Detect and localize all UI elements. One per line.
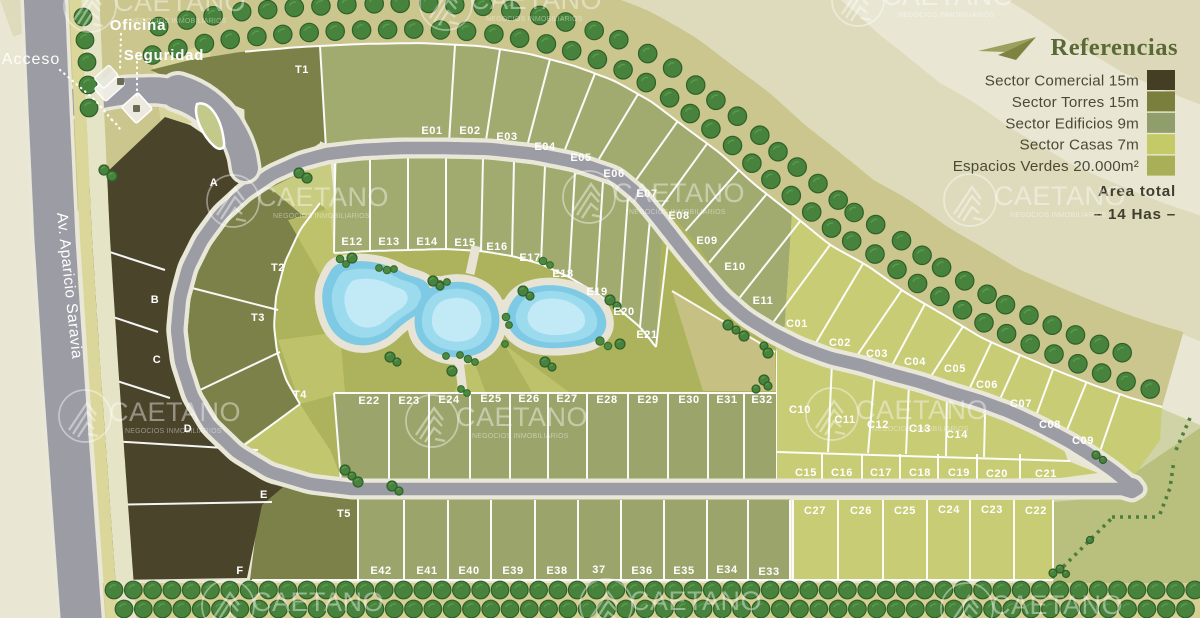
svg-text:C18: C18 [909,467,931,479]
svg-text:C02: C02 [829,337,851,349]
svg-text:C20: C20 [986,468,1008,480]
svg-text:C05: C05 [944,363,966,375]
svg-text:E16: E16 [486,241,507,253]
svg-text:Referencias: Referencias [1051,34,1179,61]
svg-text:NEGOCIOS INMOBILIARIOS: NEGOCIOS INMOBILIARIOS [273,213,370,220]
svg-text:C27: C27 [804,505,826,517]
svg-text:E03: E03 [496,131,517,143]
svg-text:T1: T1 [295,64,309,76]
svg-text:CAETANO: CAETANO [252,587,384,617]
svg-text:E12: E12 [341,236,362,248]
svg-text:E39: E39 [502,565,523,577]
svg-text:E10: E10 [724,261,745,273]
svg-text:CAETANO: CAETANO [994,181,1126,211]
svg-text:Sector Comercial 15m: Sector Comercial 15m [985,73,1139,90]
svg-text:C15: C15 [795,467,817,479]
svg-text:T2: T2 [271,262,285,274]
svg-text:C07: C07 [1010,398,1032,410]
svg-text:NEGOCIOS INMOBILIARIOS: NEGOCIOS INMOBILIARIOS [125,428,222,435]
svg-text:E20: E20 [613,306,634,318]
svg-text:CAETANO: CAETANO [456,402,588,432]
svg-text:NEGOCIOS INMOBILIARIOS: NEGOCIOS INMOBILIARIOS [486,16,583,23]
svg-text:CAETANO: CAETANO [109,397,241,427]
svg-text:E18: E18 [552,268,573,280]
svg-text:CAETANO: CAETANO [470,0,602,15]
svg-text:NEGOCIOS INMOBILIARIOS: NEGOCIOS INMOBILIARIOS [872,426,969,433]
svg-text:C23: C23 [981,504,1003,516]
svg-text:E42: E42 [370,565,391,577]
svg-text:E05: E05 [570,152,591,164]
svg-text:C03: C03 [866,348,888,360]
svg-text:E29: E29 [637,394,658,406]
svg-text:E30: E30 [678,394,699,406]
svg-text:T4: T4 [293,389,307,401]
svg-text:Sector Casas 7m: Sector Casas 7m [1020,137,1139,154]
svg-text:E14: E14 [416,236,438,248]
svg-text:E19: E19 [586,286,607,298]
svg-text:C06: C06 [976,379,998,391]
svg-text:C01: C01 [786,318,808,330]
svg-text:T3: T3 [251,312,265,324]
svg-text:E09: E09 [696,235,717,247]
svg-text:E21: E21 [636,329,657,341]
svg-text:NEGOCIOS INMOBILIARIOS: NEGOCIOS INMOBILIARIOS [1010,212,1107,219]
svg-text:Sector Edificios 9m: Sector Edificios 9m [1005,115,1139,132]
svg-text:37: 37 [592,564,605,576]
svg-text:E04: E04 [534,141,556,153]
svg-text:E17: E17 [519,252,540,264]
svg-text:CAETANO: CAETANO [613,178,745,208]
svg-text:E: E [260,489,268,501]
svg-text:E36: E36 [631,565,652,577]
svg-text:C16: C16 [831,467,853,479]
svg-text:C04: C04 [904,356,926,368]
svg-text:E13: E13 [378,236,399,248]
svg-text:C22: C22 [1025,505,1047,517]
svg-text:CAETANO: CAETANO [630,586,762,616]
svg-text:NEGOCIOS INMOBILIARIOS: NEGOCIOS INMOBILIARIOS [629,209,726,216]
svg-text:Acceso: Acceso [2,51,60,68]
svg-text:E15: E15 [454,237,475,249]
svg-text:C09: C09 [1072,435,1094,447]
svg-text:E22: E22 [358,395,379,407]
svg-text:E11: E11 [753,295,774,307]
svg-text:F: F [236,565,243,577]
svg-text:C24: C24 [938,504,960,516]
svg-text:Seguridad: Seguridad [124,47,205,64]
svg-text:T5: T5 [337,508,351,520]
svg-text:CAETANO: CAETANO [882,0,1014,11]
svg-text:C17: C17 [870,467,892,479]
svg-text:E35: E35 [673,565,694,577]
svg-text:CAETANO: CAETANO [991,590,1123,618]
svg-text:E02: E02 [459,125,480,137]
svg-text:C21: C21 [1035,468,1057,480]
svg-text:E40: E40 [458,565,479,577]
svg-text:E31: E31 [716,394,737,406]
svg-text:CAETANO: CAETANO [257,182,389,212]
svg-text:Sector Torres 15m: Sector Torres 15m [1012,94,1139,111]
svg-text:E28: E28 [596,394,617,406]
svg-text:NEGOCIOS INMOBILIARIOS: NEGOCIOS INMOBILIARIOS [898,12,995,19]
svg-text:CAETANO: CAETANO [114,0,246,17]
svg-text:B: B [151,294,160,306]
svg-text:C19: C19 [948,467,970,479]
svg-text:C25: C25 [894,505,916,517]
svg-text:E32: E32 [751,394,772,406]
svg-text:E33: E33 [758,566,779,578]
svg-text:NEGOCIOS INMOBILIARIOS: NEGOCIOS INMOBILIARIOS [130,18,227,25]
svg-text:CAETANO: CAETANO [856,395,988,425]
svg-text:E34: E34 [716,564,738,576]
svg-text:C26: C26 [850,505,872,517]
svg-text:C08: C08 [1039,419,1061,431]
svg-text:Espacios Verdes 20.000m²: Espacios Verdes 20.000m² [953,158,1139,175]
svg-text:NEGOCIOS INMOBILIARIOS: NEGOCIOS INMOBILIARIOS [472,433,569,440]
svg-text:E38: E38 [546,565,567,577]
svg-text:C: C [153,354,162,366]
svg-text:E41: E41 [416,565,437,577]
svg-text:E01: E01 [421,125,442,137]
